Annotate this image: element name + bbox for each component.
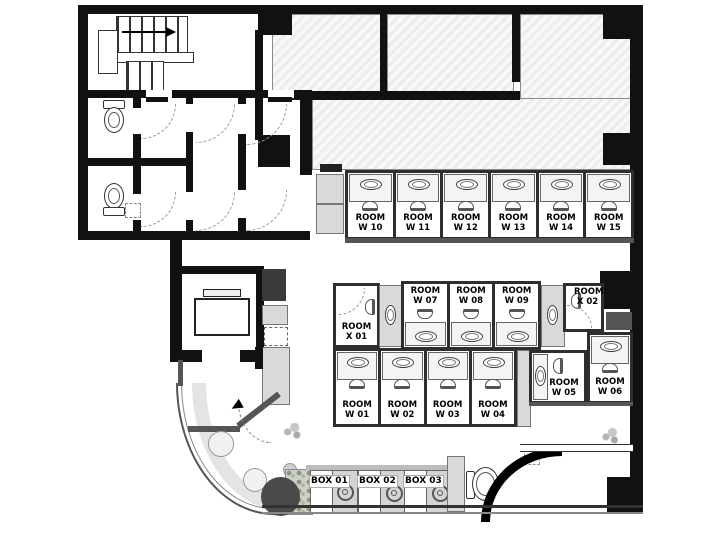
room-label: ROOMW 02 <box>381 401 423 420</box>
room-w02: ROOMW 02 <box>381 351 426 424</box>
room-w08: ROOMW 08 <box>450 284 496 347</box>
room-label: ROOMW 05 <box>544 379 584 398</box>
lounge-table <box>208 431 234 457</box>
chair-icon <box>349 379 365 389</box>
room-label: ROOMX 01 <box>336 323 377 342</box>
floor-plan: ROOMW 10 ROOMW 11 ROOMW 12 ROOMW 13 ROOM… <box>0 0 724 535</box>
room-w06: ROOMW 06 <box>587 332 633 404</box>
toilet-icon <box>104 107 124 133</box>
room-label: ROOMW 08 <box>450 287 493 306</box>
chair-icon <box>394 379 410 389</box>
room-label: ROOMW 13 <box>491 214 536 233</box>
wall <box>262 505 643 508</box>
sink-icon <box>438 357 460 368</box>
wall <box>300 90 312 175</box>
room-w13: ROOMW 13 <box>491 173 539 237</box>
door-opening <box>238 190 246 218</box>
hatched-area <box>387 14 514 94</box>
chair-icon <box>410 201 426 211</box>
sink-icon <box>347 357 369 368</box>
sink-column <box>541 285 565 347</box>
room-row-bottom: ROOMW 01 ROOMW 02 ROOMW 03 ROOMW 04 <box>333 348 517 427</box>
wall <box>603 133 632 165</box>
wall <box>630 5 643 513</box>
wall <box>258 5 292 35</box>
plant-icon <box>281 422 303 440</box>
wall <box>380 13 387 93</box>
wall <box>603 13 632 39</box>
door-opening <box>186 192 193 220</box>
sink-icon <box>461 331 483 342</box>
room-label: ROOMW 03 <box>427 401 469 420</box>
room-row-middle: ROOMW 07 ROOMW 08 ROOMW 09 <box>401 281 541 350</box>
chair-icon <box>601 201 617 211</box>
cabinet <box>316 204 344 234</box>
equipment-dashed-box <box>264 327 288 346</box>
room-label: ROOMW 14 <box>539 214 584 233</box>
room-label: ROOMW 07 <box>404 287 447 306</box>
room-label: ROOMW 11 <box>396 214 441 233</box>
door-swing-arc <box>141 192 176 227</box>
door-swing-arc <box>141 104 176 139</box>
chair-icon <box>485 379 501 389</box>
toilet-tank-icon <box>103 207 125 216</box>
wall <box>78 5 88 240</box>
chair-icon <box>553 201 569 211</box>
box-label: BOX 02 <box>357 475 398 488</box>
chair-icon <box>440 379 456 389</box>
sink-icon <box>408 179 430 190</box>
chair-icon <box>458 201 474 211</box>
sink-icon <box>599 179 621 190</box>
chair-icon <box>362 201 378 211</box>
door-swing-arc <box>246 190 287 231</box>
round-table-dark <box>261 477 300 516</box>
room-w10: ROOMW 10 <box>348 173 396 237</box>
wall <box>600 271 632 309</box>
door-leaf <box>146 97 168 102</box>
door-swing-arc <box>196 104 235 143</box>
stairs-arrow-icon <box>166 27 176 37</box>
room-w07: ROOMW 07 <box>404 284 450 347</box>
room-w04: ROOMW 04 <box>472 351 514 424</box>
door-swing-arc <box>196 192 235 231</box>
elevator-door-opening <box>202 350 240 362</box>
box-label: BOX 01 <box>309 475 350 488</box>
wall <box>262 512 643 514</box>
wall <box>512 10 520 82</box>
sink-icon <box>600 341 622 352</box>
chair-icon <box>463 309 479 319</box>
sink-icon <box>507 331 529 342</box>
door-leaf <box>268 97 292 102</box>
room-w14: ROOMW 14 <box>539 173 587 237</box>
room-label: ROOMW 10 <box>348 214 393 233</box>
wall <box>170 240 182 362</box>
wall <box>255 347 263 369</box>
accessible-rail <box>125 203 141 218</box>
sink-icon <box>551 179 573 190</box>
cabinet <box>316 174 344 204</box>
sink-icon <box>385 305 396 325</box>
room-x02: ROOMX 02 <box>563 283 604 332</box>
box-label: BOX 03 <box>403 475 444 488</box>
wall <box>606 312 632 330</box>
room-w15: ROOMW 15 <box>586 173 631 237</box>
door-opening <box>133 108 141 134</box>
wall <box>345 238 634 243</box>
room-label: ROOMW 01 <box>336 401 378 420</box>
wall <box>178 360 183 386</box>
room-row-top: ROOMW 10 ROOMW 11 ROOMW 12 ROOMW 13 ROOM… <box>345 170 634 240</box>
sink-icon <box>547 305 558 325</box>
wall <box>447 456 465 512</box>
room-label: ROOMW 15 <box>586 214 631 233</box>
wall <box>182 266 258 274</box>
wall <box>78 231 310 240</box>
room-w05: ROOMW 05 <box>529 350 587 404</box>
chair-icon <box>505 201 521 211</box>
room-label: ROOMW 04 <box>472 401 514 420</box>
room-w01: ROOMW 01 <box>336 351 381 424</box>
wall <box>78 5 638 14</box>
stairwell <box>98 30 118 74</box>
curved-wall <box>481 447 562 522</box>
plant-icon <box>600 427 620 445</box>
elevator-car <box>194 298 250 336</box>
elevator-rail <box>203 289 241 297</box>
chair-icon <box>365 299 375 315</box>
wall <box>520 444 633 452</box>
sink-icon <box>483 357 505 368</box>
door-opening <box>238 104 246 134</box>
room-w12: ROOMW 12 <box>443 173 491 237</box>
chair-icon <box>553 358 563 374</box>
door-swing-arc <box>567 305 592 328</box>
room-w09: ROOMW 09 <box>495 284 538 347</box>
cabinet <box>262 305 288 325</box>
room-x01: ROOMX 01 <box>333 283 380 348</box>
chair-icon <box>417 309 433 319</box>
sink-column <box>379 285 403 347</box>
cabinet <box>320 164 342 172</box>
room-w11: ROOMW 11 <box>396 173 444 237</box>
room-label: ROOMW 09 <box>495 287 538 306</box>
chair-icon <box>509 309 525 319</box>
door-swing-arc <box>338 288 365 315</box>
stairs-direction-line <box>122 31 168 33</box>
room-label: ROOMW 06 <box>590 378 630 397</box>
chair-icon <box>602 363 618 373</box>
wall <box>529 402 633 406</box>
hatched-area <box>312 98 632 170</box>
room-label: ROOMX 02 <box>574 288 601 307</box>
room-w03: ROOMW 03 <box>427 351 472 424</box>
shaft-block <box>262 269 286 301</box>
room-label: ROOMW 12 <box>443 214 488 233</box>
stairs-upper-flight <box>116 16 188 54</box>
door-opening <box>186 104 193 132</box>
sink-icon <box>456 179 478 190</box>
toilet-icon <box>104 183 124 209</box>
wall <box>188 426 240 432</box>
